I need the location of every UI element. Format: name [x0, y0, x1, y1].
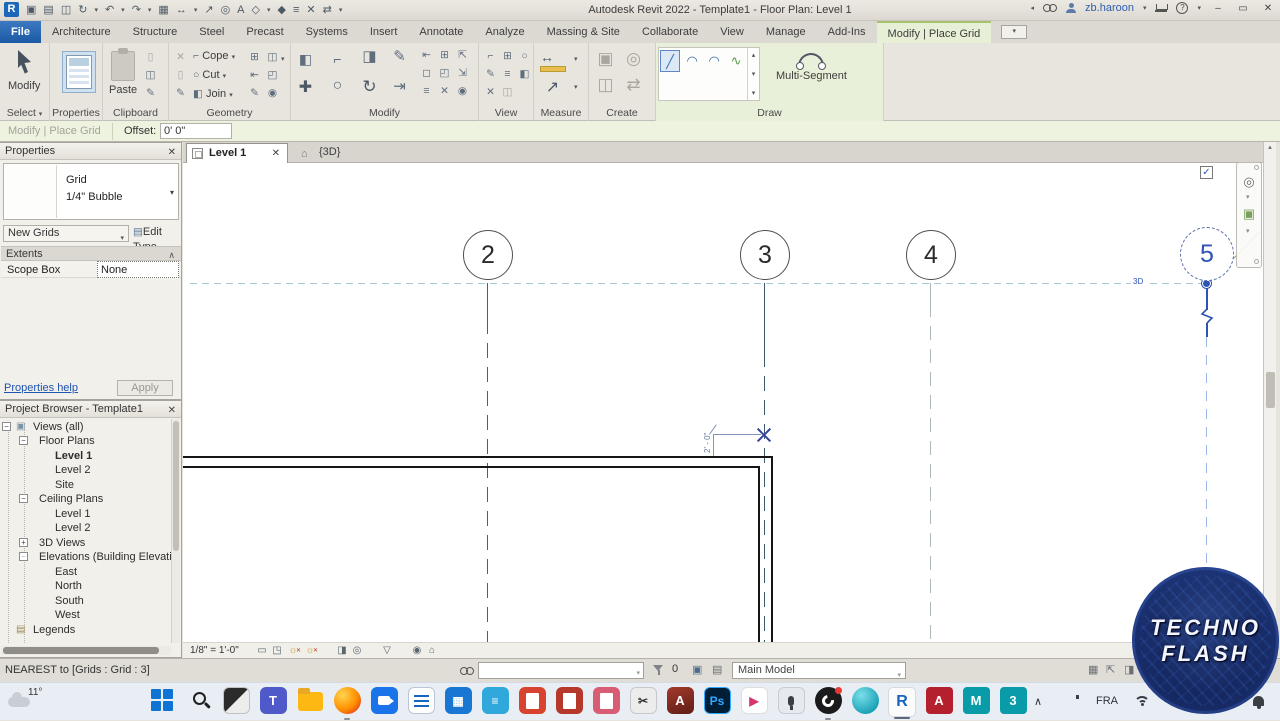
app-store-cart-icon[interactable]	[1155, 4, 1167, 12]
draw-arc-center-tool[interactable]: ◠	[704, 50, 724, 72]
expand-icon[interactable]: +	[19, 538, 28, 547]
panel-clipboard: Paste ▯ ◫ ✎ Clipboard	[103, 43, 169, 121]
join-tool[interactable]: ◧ Join ▾	[193, 88, 233, 100]
create-parts-icon[interactable]: ⇄	[625, 75, 642, 90]
array-icon[interactable]: ◻	[419, 67, 434, 80]
media-app[interactable]: ▶	[740, 687, 768, 717]
print-icon[interactable]: ▦	[158, 3, 168, 16]
properties-close-icon[interactable]: ✕	[168, 145, 176, 161]
grid-bubble-3[interactable]: 3	[740, 230, 790, 280]
doc-app-2[interactable]	[555, 687, 583, 717]
properties-title: Properties	[5, 145, 55, 157]
reveal-hidden-icon[interactable]	[365, 644, 379, 657]
tab-manage[interactable]: Manage	[755, 21, 817, 43]
tree-item-3d-views[interactable]: + 3D Views	[0, 537, 171, 551]
techno-flash-watermark: TECHNO FLASH	[1132, 567, 1279, 714]
filter-icon[interactable]	[653, 665, 664, 675]
constraints-icon[interactable]: ⌂	[425, 644, 439, 657]
override-graphics-icon[interactable]: ✎	[483, 68, 498, 81]
panel-label-measure: Measure	[534, 107, 588, 119]
tree-item-north[interactable]: North	[0, 580, 171, 594]
extend-icon[interactable]: ⇤	[419, 49, 434, 62]
window-title: Autodesk Revit 2022 - Template1 - Floor …	[560, 4, 880, 16]
design-option-select[interactable]: Main Model ▾	[732, 662, 906, 679]
wall-horizontal-inner[interactable]	[183, 466, 760, 468]
split-icon[interactable]: ⊞	[437, 49, 452, 62]
close-button[interactable]: ✕	[1260, 3, 1276, 14]
tab-structure[interactable]: Structure	[122, 21, 189, 43]
undo-caret-icon[interactable]: ▾	[121, 6, 125, 14]
ribbon-state-toggle[interactable]: ▾	[1001, 25, 1027, 39]
tree-item-site[interactable]: Site	[0, 479, 171, 493]
grid-line-3-dashed[interactable]	[764, 352, 765, 642]
type-selector[interactable]: Grid 1/4" Bubble ▾	[3, 163, 179, 220]
align-icon[interactable]: ◧	[297, 51, 314, 66]
display-box-icon[interactable]: ◫	[500, 86, 515, 99]
edit-type-icon: ▤	[133, 226, 143, 238]
autocad-badge-app[interactable]: A	[925, 687, 953, 717]
user-avatar-icon	[1066, 3, 1076, 13]
properties-icon	[66, 55, 92, 89]
measure-tool-icon[interactable]: ◉	[455, 85, 470, 98]
properties-header[interactable]: Properties ✕	[0, 143, 181, 160]
unpin-icon[interactable]: ⇲	[455, 67, 470, 80]
panel-select: Modify Select ▾	[0, 43, 50, 121]
default-3d-view-icon[interactable]: ◇	[252, 3, 260, 16]
user-menu-caret-icon[interactable]: ▾	[1143, 4, 1147, 12]
type-preview	[5, 165, 57, 218]
undo-icon[interactable]: ↶	[105, 3, 114, 16]
pdf-app[interactable]	[518, 687, 546, 717]
title-bar-right: ◂ zb.haroon ▾ ? ▾ – ▭ ✕	[1031, 2, 1276, 14]
select-links-icon[interactable]: ▦	[1088, 663, 1098, 676]
multi-segment-icon	[798, 53, 824, 67]
navigation-bar: ◎ ▾ ▣ ▾	[1236, 162, 1262, 268]
sync-caret-icon[interactable]: ▾	[94, 6, 98, 14]
properties-palette: Properties ✕ Grid 1/4" Bubble ▾ New Grid…	[0, 142, 182, 400]
project-browser: Project Browser - Template1 ✕ − ▣ Views …	[0, 400, 182, 658]
photos-icon	[223, 687, 250, 714]
active-indicator	[894, 717, 910, 720]
hammer-icon[interactable]: ◉	[265, 87, 280, 100]
panel-modify: ◧ ⌐ ◨ ✎ ✚ ○ ↻ ⇥ ⇤ ⊞ ⇱ ◻ ◰ ⇲ ≡ ✕ ◉ Modify	[291, 43, 479, 121]
measure-icon[interactable]: ↗	[204, 3, 213, 16]
extents-section-header[interactable]: Extents ∧	[1, 246, 181, 261]
tree-item-elevations[interactable]: − Elevations (Building Elevatio	[0, 551, 171, 565]
aligned-dimension-button[interactable]: ↔	[540, 49, 566, 72]
steering-wheel-icon[interactable]: ◎	[1240, 173, 1258, 191]
tree-item-east[interactable]: East	[0, 566, 171, 580]
taskbar-icons: T ▦ ≡ ✂ A Ps ▶ R A M 3	[148, 687, 1027, 717]
help-caret-icon[interactable]: ▾	[1197, 4, 1201, 12]
close-hidden-windows-icon[interactable]: ✕	[306, 3, 315, 16]
temporary-hide-icon[interactable]: ◎	[350, 644, 364, 657]
split-face-icon[interactable]: ✎	[173, 87, 188, 100]
notification-bell-icon[interactable]	[1253, 696, 1264, 706]
view3d-caret-icon[interactable]: ▾	[267, 6, 271, 14]
firefox-app[interactable]	[333, 687, 361, 717]
tab-systems[interactable]: Systems	[295, 21, 359, 43]
wall-join-caret-icon[interactable]: ▾	[281, 55, 285, 63]
properties-palette-button[interactable]	[62, 51, 96, 93]
window-icon[interactable]: ▣	[26, 3, 36, 16]
mirror-draw-icon[interactable]: ✎	[391, 47, 408, 62]
firefox-icon	[334, 687, 361, 714]
scissors-icon: ✂	[630, 687, 657, 714]
isolate-icon[interactable]: ⊞	[500, 50, 515, 63]
search-icon[interactable]	[1043, 4, 1057, 13]
profile-edit-icon[interactable]: ✎	[247, 87, 262, 100]
floor-plan-icon	[192, 148, 203, 159]
type-desc: 1/4" Bubble	[66, 191, 123, 203]
text-icon[interactable]: A	[237, 4, 244, 16]
navbar-gear-icon[interactable]	[1254, 165, 1259, 170]
views-icon: ▣	[16, 421, 25, 432]
beam-join-icon[interactable]: ⊞	[247, 51, 262, 64]
filter-dropdown[interactable]: New Grids ▾	[3, 225, 129, 242]
camera-icon	[371, 687, 398, 714]
tree-item-ceiling-plans[interactable]: − Ceiling Plans	[0, 493, 171, 507]
draw-tool-box: ╱ ◠ ◠ ∿ ▴ ▾ ▾	[658, 47, 760, 101]
signed-in-user[interactable]: zb.haroon	[1085, 2, 1134, 14]
extents-collapse-icon[interactable]: ∧	[168, 248, 175, 262]
scroll-up-icon[interactable]: ▴	[1264, 142, 1276, 153]
bulb-icon[interactable]: ○	[517, 50, 532, 63]
tree-item-ceiling-level-2[interactable]: Level 2	[0, 522, 171, 536]
crop-view-icon[interactable]	[320, 644, 334, 657]
reset-temporary-icon[interactable]: ✕	[483, 86, 498, 99]
logo-line1: TECHNO	[1150, 615, 1261, 640]
tab-analyze[interactable]: Analyze	[474, 21, 535, 43]
grid-bubble-5-selected[interactable]: 5	[1180, 227, 1234, 281]
play-icon: ▶	[741, 687, 768, 714]
linework-icon[interactable]: ≡	[500, 68, 515, 81]
grid-line-3[interactable]	[764, 283, 765, 352]
notes-icon: ≡	[482, 687, 509, 714]
folder-icon	[298, 692, 323, 711]
legends-icon: ▤	[16, 624, 25, 635]
temporary-properties-icon[interactable]	[395, 644, 409, 657]
wall-horizontal-outer[interactable]	[183, 456, 773, 458]
draw-line-tool[interactable]: ╱	[660, 50, 680, 72]
recorder-app[interactable]	[777, 687, 805, 717]
mirror-axis-icon[interactable]: ◨	[361, 47, 378, 62]
scroll-thumb[interactable]	[1266, 372, 1275, 408]
offset-label: Offset:	[124, 125, 156, 137]
tree-item-legends[interactable]: ▤ Legends	[0, 624, 171, 638]
wall-vertical-outer[interactable]	[771, 456, 773, 642]
offset-input[interactable]: 0' 0"	[160, 123, 232, 139]
grid-line-4-dashed[interactable]	[930, 303, 931, 642]
back-icon[interactable]: ◂	[1031, 4, 1035, 12]
hide-element-icon[interactable]: ◧	[517, 68, 532, 81]
apply-button[interactable]: Apply	[117, 380, 173, 396]
tree-item-views-all[interactable]: − ▣ Views (all)	[0, 421, 171, 435]
paste-button[interactable]: Paste	[109, 51, 137, 96]
draw-scroll-up-icon[interactable]: ▴	[752, 51, 756, 59]
scale-icon[interactable]: ◰	[437, 67, 452, 80]
temp-dim-witness-v	[713, 434, 714, 456]
draw-scroll-down-icon[interactable]: ▾	[752, 70, 756, 78]
open-icon[interactable]: ▤	[43, 3, 53, 16]
view-tab-strip: Level 1 ✕ ⌂ {3D}	[183, 142, 1263, 163]
copy-tool-icon[interactable]: ○	[329, 77, 346, 92]
cloud-icon	[8, 697, 30, 707]
drag-on-selection-icon[interactable]: ◨	[1124, 663, 1134, 676]
delete-icon[interactable]: ✕	[437, 85, 452, 98]
project-browser-title: Project Browser - Template1	[5, 403, 143, 415]
grid-bubble-2[interactable]: 2	[463, 230, 513, 280]
3dsmax-app[interactable]: 3	[999, 687, 1027, 717]
measure-caret-icon[interactable]: ▾	[574, 83, 578, 91]
expand-icon[interactable]: −	[2, 422, 11, 431]
tab-add-ins[interactable]: Add-Ins	[817, 21, 877, 43]
taskbar-search-button[interactable]	[185, 687, 213, 717]
ribbon: Modify Select ▾ Properties Paste ▯ ◫ ✎ C…	[0, 43, 1280, 121]
teams-app[interactable]: T	[259, 687, 287, 717]
pin-icon[interactable]: ⇱	[455, 49, 470, 62]
meet-app[interactable]	[370, 687, 398, 717]
windows-taskbar: 11° T ▦ ≡ ✂ A Ps ▶ R A M 3 ∧ FRA	[0, 682, 1280, 720]
draw-expand-icon[interactable]: ▾	[752, 89, 756, 97]
obs-app[interactable]	[814, 687, 842, 717]
sync-icon[interactable]: ↻	[78, 3, 87, 16]
match-type-icon[interactable]: ▯	[143, 51, 158, 64]
panel-label-properties: Properties	[50, 107, 102, 119]
navbar-gear2-icon[interactable]	[1254, 259, 1259, 264]
sphere-icon	[852, 687, 879, 714]
panel-draw: ╱ ◠ ◠ ∿ ▴ ▾ ▾ Multi-Segment Draw	[656, 43, 884, 121]
tab-modify-place-grid[interactable]: Modify | Place Grid	[877, 21, 992, 43]
save-icon[interactable]: ◫	[61, 3, 71, 16]
thin-lines-icon[interactable]: ≡	[293, 4, 299, 16]
zoom-region-icon[interactable]: ▣	[1240, 205, 1258, 223]
wall-vertical-inner[interactable]	[758, 466, 760, 642]
status-search-caret-icon: ▾	[636, 669, 640, 677]
tab-steel[interactable]: Steel	[188, 21, 235, 43]
notes-app[interactable]: ≡	[481, 687, 509, 717]
detail-level-icon[interactable]: ▭	[255, 644, 269, 657]
panel-label-create: Create	[589, 107, 655, 119]
cope-tool[interactable]: ⌐ Cope ▾	[193, 50, 235, 62]
shadows-icon[interactable]: ☼	[303, 644, 317, 657]
tab-precast[interactable]: Precast	[235, 21, 294, 43]
panel-label-view: View	[479, 107, 533, 119]
panel-properties: Properties	[50, 43, 103, 121]
redo-caret-icon[interactable]: ▾	[148, 6, 152, 14]
redo-icon[interactable]: ↷	[132, 3, 141, 16]
temp-dimension-value[interactable]: 2' - 0"	[703, 433, 712, 453]
grid-line-2-dashed[interactable]	[487, 319, 488, 642]
draw-arc-start-end-tool[interactable]: ◠	[682, 50, 702, 72]
photos-app[interactable]	[222, 687, 250, 717]
photoshop-app[interactable]: Ps	[703, 687, 731, 717]
create-similar-icon[interactable]: ◎	[625, 49, 642, 64]
select-pinned-icon[interactable]: ⇱	[1106, 663, 1115, 676]
view-tab-level1[interactable]: Level 1 ✕	[186, 143, 288, 163]
multi-segment-button[interactable]: Multi-Segment	[776, 45, 847, 82]
tab-architecture[interactable]: Architecture	[41, 21, 122, 43]
photoshop-icon: Ps	[704, 687, 731, 714]
wheel-caret-icon[interactable]: ▾	[1246, 193, 1250, 201]
browser-vertical-scrollbar[interactable]	[171, 419, 180, 643]
revit-taskbar-icon: R	[889, 688, 915, 715]
revit-logo-icon[interactable]: R	[4, 2, 19, 17]
tab-annotate[interactable]: Annotate	[408, 21, 474, 43]
3dsmax-icon: 3	[1000, 687, 1027, 714]
grid-end-checkbox[interactable]: ✓	[1200, 166, 1213, 179]
paint-icon[interactable]: ▯	[173, 69, 188, 82]
properties-help-link[interactable]: Properties help	[4, 382, 78, 394]
draw-pick-lines-tool[interactable]: ∿	[726, 50, 746, 72]
panel-geometry: ✕ ▯ ✎ ⌐ Cope ▾ ○ Cut ▾ ◧ Join ▾ ⊞ ◫▾ ⇤ ◰…	[169, 43, 291, 121]
scope-box-row: Scope Box None	[1, 261, 181, 278]
title-bar: R ▣ ▤ ◫ ↻▾ ↶▾ ↷▾ ▦ ↔▾ ↗ ◎ A ◇▾ ◆ ≡ ✕ ⇄▾ …	[0, 0, 1280, 21]
magnifier-icon	[193, 692, 206, 705]
revit-app-active[interactable]: R	[888, 687, 916, 717]
sun-path-icon[interactable]: ☼	[286, 644, 300, 657]
dimension-icon[interactable]: ↔	[176, 4, 187, 16]
create-assembly-icon[interactable]: ◫	[597, 75, 614, 90]
sphere-app[interactable]	[851, 687, 879, 717]
windows-logo-icon	[151, 689, 173, 711]
tab-massing-site[interactable]: Massing & Site	[536, 21, 631, 43]
calculator-icon: ▦	[445, 687, 472, 714]
doc-app-3[interactable]	[592, 687, 620, 717]
home-3d-icon: ⌂	[301, 145, 308, 164]
worksharing-icon[interactable]: ▽	[380, 644, 394, 657]
language-indicator[interactable]: FRA	[1096, 695, 1118, 707]
doc2-icon	[556, 687, 583, 714]
snipping-app[interactable]: ✂	[629, 687, 657, 717]
draw-scroll: ▴ ▾ ▾	[747, 48, 759, 100]
edit-type-button[interactable]: ▤Edit Type	[133, 225, 179, 242]
panel-measure: ↔ ▾ ↗ ▾ Measure	[534, 43, 589, 121]
match-properties-icon[interactable]: ✎	[143, 87, 158, 100]
analytical-icon[interactable]: ◉	[410, 644, 424, 657]
scope-box-value[interactable]: None	[97, 261, 179, 278]
canvas-vertical-scrollbar[interactable]: ▴ ▾	[1263, 142, 1276, 658]
cut-geometry-icon[interactable]: ✕	[173, 51, 188, 64]
grid-5-tail	[1206, 323, 1208, 337]
grid-bubble-4[interactable]: 4	[906, 230, 956, 280]
writer-app[interactable]	[407, 687, 435, 717]
autocad-app[interactable]: A	[666, 687, 694, 717]
temperature: 11°	[28, 687, 42, 698]
tree-item-level-2[interactable]: Level 2	[0, 464, 171, 478]
unjoin-icon[interactable]: ⇤	[247, 69, 262, 82]
autocad-icon: A	[667, 687, 694, 714]
view-scale[interactable]: 1/8" = 1'-0"	[190, 645, 239, 656]
wifi-icon[interactable]	[1134, 696, 1150, 708]
match-icon[interactable]: ≡	[419, 85, 434, 98]
zoom-caret-icon[interactable]: ▾	[1246, 227, 1250, 235]
type-selector-caret-icon[interactable]: ▾	[170, 188, 174, 197]
tree-item-ceiling-level-1[interactable]: Level 1	[0, 508, 171, 522]
file-explorer-app[interactable]	[296, 687, 324, 717]
start-button[interactable]	[148, 687, 176, 717]
drawing-area[interactable]: 3D 2 3 4 5 2' - 0"	[183, 163, 1263, 642]
restore-button[interactable]: ▭	[1235, 3, 1251, 14]
move-icon[interactable]: ✚	[297, 77, 314, 92]
expand-icon[interactable]: −	[19, 436, 28, 445]
switch-windows-icon[interactable]: ⇄	[323, 3, 332, 16]
editable-only-icon[interactable]: ▣	[692, 663, 702, 676]
options-bar: Modify | Place Grid Offset: 0' 0"	[0, 121, 1280, 142]
tree-item-level-1[interactable]: Level 1	[0, 450, 171, 464]
modify-cursor-icon	[13, 49, 35, 77]
tab-insert[interactable]: Insert	[359, 21, 409, 43]
expand-icon[interactable]: −	[19, 552, 28, 561]
tab-file[interactable]: File	[0, 21, 41, 43]
project-browser-close-icon[interactable]: ✕	[168, 403, 176, 419]
cut-tool[interactable]: ○ Cut ▾	[193, 69, 226, 81]
wall-join-icon[interactable]: ◫	[265, 51, 280, 64]
tree-item-west[interactable]: West	[0, 609, 171, 623]
browser-horizontal-scrollbar[interactable]	[1, 646, 171, 655]
qat-customize-icon[interactable]: ▾	[339, 6, 343, 14]
hidden-icons-chevron[interactable]: ∧	[1034, 695, 1042, 708]
view-tab-3d[interactable]: ⌂ {3D}	[295, 143, 361, 163]
offset-icon[interactable]: ⌐	[329, 51, 346, 66]
tree-item-south[interactable]: South	[0, 595, 171, 609]
dimension-caret-icon[interactable]: ▾	[194, 6, 198, 14]
trim-corner-icon[interactable]: ⇥	[391, 77, 408, 92]
grid-line-2[interactable]	[487, 283, 488, 319]
expand-icon[interactable]: −	[19, 494, 28, 503]
calculator-app[interactable]: ▦	[444, 687, 472, 717]
rotate-icon[interactable]: ↻	[361, 77, 378, 92]
teams-icon: T	[260, 687, 287, 714]
status-search-input[interactable]: ▾	[478, 662, 644, 679]
options-separator	[112, 123, 113, 140]
modify-tool-button[interactable]: Modify	[8, 49, 40, 92]
grid-line-4[interactable]	[930, 283, 931, 303]
create-group-icon[interactable]: ▣	[597, 49, 614, 64]
pdf-icon	[519, 687, 546, 714]
visual-style-icon[interactable]: ◳	[270, 644, 284, 657]
modify-button-label: Modify	[8, 80, 40, 92]
ribbon-tab-bar: File Architecture Structure Steel Precas…	[0, 21, 1280, 43]
doc3-icon	[593, 687, 620, 714]
copy-icon[interactable]: ◫	[143, 69, 158, 82]
autocad-badge-icon: A	[926, 687, 953, 714]
weather-widget[interactable]: 11°	[6, 687, 60, 717]
minimize-button[interactable]: –	[1210, 3, 1226, 14]
demolish-icon[interactable]: ◰	[265, 69, 280, 82]
dimension-caret-icon[interactable]: ▾	[574, 55, 578, 63]
view-control-bar: 1/8" = 1'-0" ▭ ◳ ☼ ☼ ◨ ◎ ▽ ◉ ⌂	[183, 642, 1263, 658]
view-tab-close-icon[interactable]: ✕	[272, 144, 280, 163]
temp-dim-witness-h	[713, 434, 761, 435]
grid-3d-extent-label[interactable]: 3D	[1131, 277, 1145, 286]
tag-icon[interactable]: ◎	[221, 3, 231, 16]
workset-icon[interactable]: ▤	[712, 663, 722, 676]
project-browser-header[interactable]: Project Browser - Template1 ✕	[0, 401, 181, 418]
maya-app[interactable]: M	[962, 687, 990, 717]
tab-view[interactable]: View	[709, 21, 755, 43]
tab-collaborate[interactable]: Collaborate	[631, 21, 709, 43]
panel-label-select[interactable]: Select ▾	[0, 107, 49, 119]
panel-create: ▣ ◎ ◫ ⇄ Create	[589, 43, 656, 121]
crop-region-icon[interactable]: ◨	[335, 644, 349, 657]
options-mode-label: Modify | Place Grid	[8, 125, 101, 137]
help-icon[interactable]: ?	[1176, 2, 1188, 14]
hide-category-icon[interactable]: ⌐	[483, 50, 498, 63]
tree-item-floor-plans[interactable]: − Floor Plans	[0, 435, 171, 449]
section-icon[interactable]: ◆	[278, 3, 286, 16]
measure-between-icon[interactable]: ↗	[544, 77, 561, 92]
